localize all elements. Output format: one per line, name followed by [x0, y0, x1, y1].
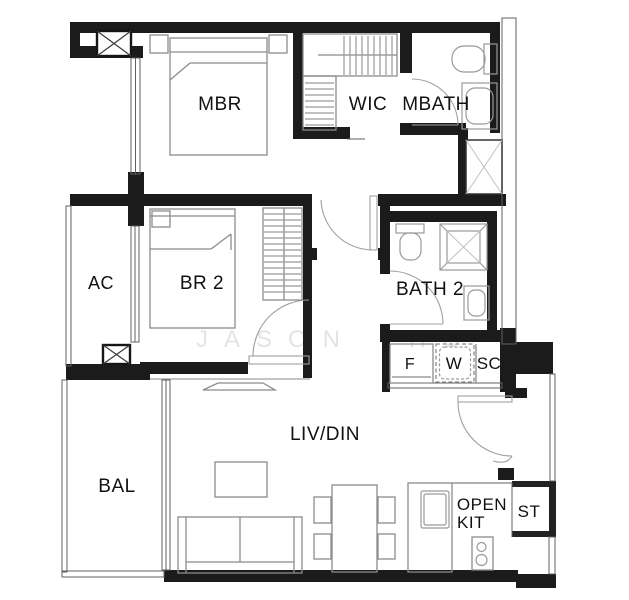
room-label-ac: AC [88, 273, 114, 293]
wic-closet-icon [303, 34, 397, 130]
nightstand-icon [150, 35, 168, 53]
room-label-st: ST [518, 502, 541, 521]
room-label-wic: WIC [349, 94, 387, 115]
balcony-bottom-rail [62, 571, 164, 577]
wardrobe-icon [263, 208, 302, 300]
nightstand-icon [269, 35, 287, 53]
aircon-ledge-icon [466, 140, 502, 194]
room-label-livdin: LIV/DIN [290, 424, 360, 445]
sink-icon [464, 286, 489, 320]
room-label-washer: W [446, 354, 463, 373]
ac-ledge-boundary [66, 206, 71, 366]
toilet-icon [396, 224, 424, 260]
living-furniture [178, 383, 395, 573]
aircon-unit-top-icon [97, 31, 131, 56]
room-label-fridge: F [405, 356, 415, 373]
room-label-br2: BR 2 [180, 273, 224, 294]
entry-door-swing [458, 396, 512, 462]
sofa-icon [178, 517, 302, 573]
balcony-left-rail [62, 380, 67, 572]
room-label-mbath: MBATH [402, 94, 470, 115]
room-label-mbr: MBR [198, 94, 242, 115]
aircon-unit-bottom-icon [103, 345, 130, 364]
bath2-fixtures [396, 224, 489, 320]
hallway-door-swing [321, 196, 377, 250]
room-label-openkit-1: OPEN [457, 495, 507, 514]
right-ledge-boundary [502, 18, 516, 344]
br2-window [131, 226, 139, 342]
entry-side-boundary [549, 537, 555, 574]
floor-plan: JASON HO [0, 0, 629, 600]
room-label-bath2: BATH 2 [396, 279, 464, 300]
bed-icon [150, 209, 235, 328]
mbr-window [131, 58, 140, 174]
floor-plan-page: JASON HO [0, 0, 629, 600]
utility-bottom-line [388, 383, 502, 388]
balcony-sliding-door [162, 380, 170, 570]
room-label-sc: SC [477, 354, 502, 373]
coffee-table-icon [215, 462, 267, 497]
br2-furniture [150, 208, 302, 328]
kitchen-sink-icon [421, 491, 449, 528]
dining-table-icon [314, 485, 395, 572]
entry-right-boundary [550, 374, 555, 481]
shower-icon [440, 224, 487, 270]
tv-console-icon [203, 383, 275, 390]
room-label-bal: BAL [98, 476, 135, 497]
room-label-openkit-2: KIT [457, 513, 485, 532]
stove-icon [472, 537, 493, 570]
